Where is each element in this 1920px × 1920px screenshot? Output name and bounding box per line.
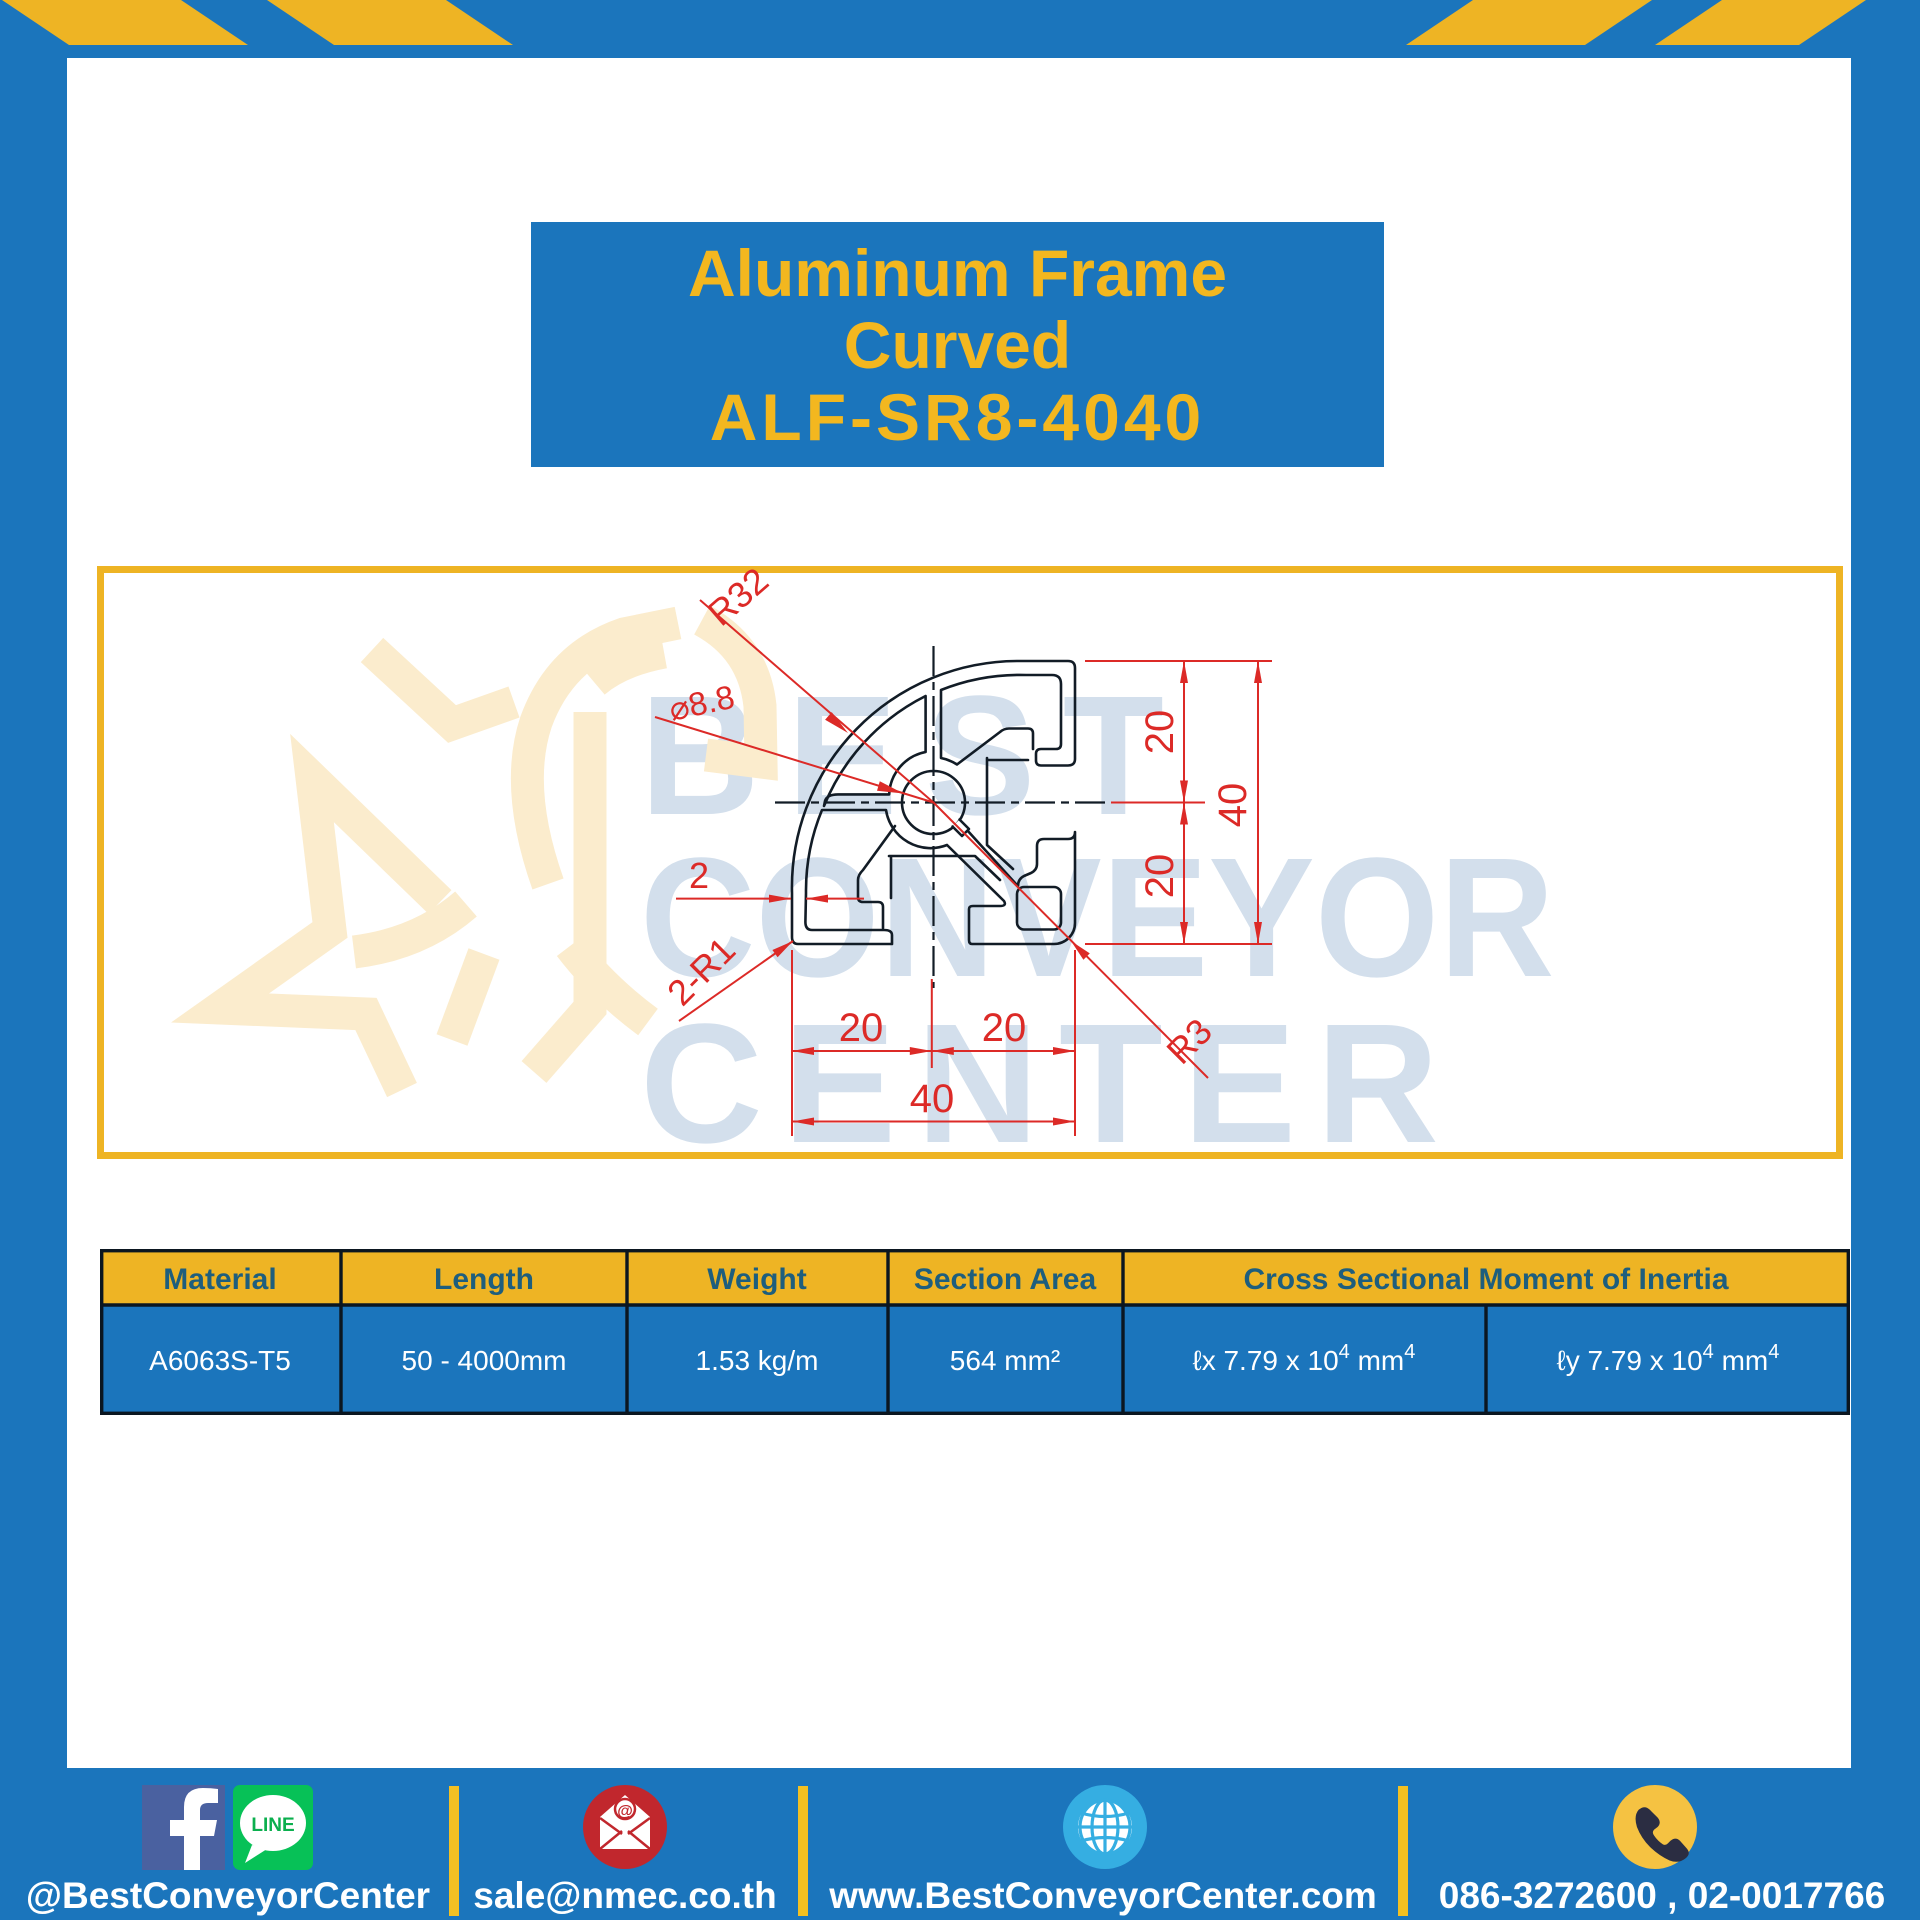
svg-text:R3: R3 [1158, 1010, 1220, 1072]
svg-text:ℓy 7.79 x 104 mm4: ℓy 7.79 x 104 mm4 [1557, 1341, 1780, 1376]
svg-text:20: 20 [1138, 854, 1182, 899]
svg-text:40: 40 [1211, 783, 1255, 828]
svg-text:1.53 kg/m: 1.53 kg/m [696, 1345, 819, 1376]
svg-text:2-R1: 2-R1 [659, 929, 743, 1013]
svg-text:20: 20 [982, 1006, 1027, 1050]
svg-text:@: @ [617, 1803, 633, 1820]
svg-text:ℓx 7.79 x 104 mm4: ℓx 7.79 x 104 mm4 [1193, 1341, 1416, 1376]
svg-text:2: 2 [689, 855, 709, 896]
svg-text:Length: Length [434, 1263, 534, 1296]
svg-text:Cross Sectional Moment of Iner: Cross Sectional Moment of Inertia [1243, 1263, 1728, 1296]
svg-text:40: 40 [910, 1077, 955, 1121]
svg-text:50 - 4000mm: 50 - 4000mm [402, 1345, 567, 1376]
svg-text:Material: Material [163, 1263, 276, 1296]
svg-text:20: 20 [1138, 710, 1182, 755]
svg-text:086-3272600 , 02-0017766: 086-3272600 , 02-0017766 [1439, 1875, 1885, 1916]
svg-text:www.BestConveyorCenter.com: www.BestConveyorCenter.com [828, 1875, 1377, 1916]
svg-text:sale@nmec.co.th: sale@nmec.co.th [473, 1875, 776, 1916]
svg-text:@BestConveyorCenter: @BestConveyorCenter [26, 1875, 430, 1916]
svg-text:Weight: Weight [707, 1263, 806, 1296]
svg-text:⌀8.8: ⌀8.8 [666, 678, 738, 728]
svg-text:LINE: LINE [251, 1815, 294, 1836]
svg-text:564 mm²: 564 mm² [950, 1345, 1060, 1376]
svg-text:20: 20 [839, 1006, 884, 1050]
svg-text:A6063S-T5: A6063S-T5 [149, 1345, 291, 1376]
svg-text:Section Area: Section Area [914, 1263, 1097, 1296]
